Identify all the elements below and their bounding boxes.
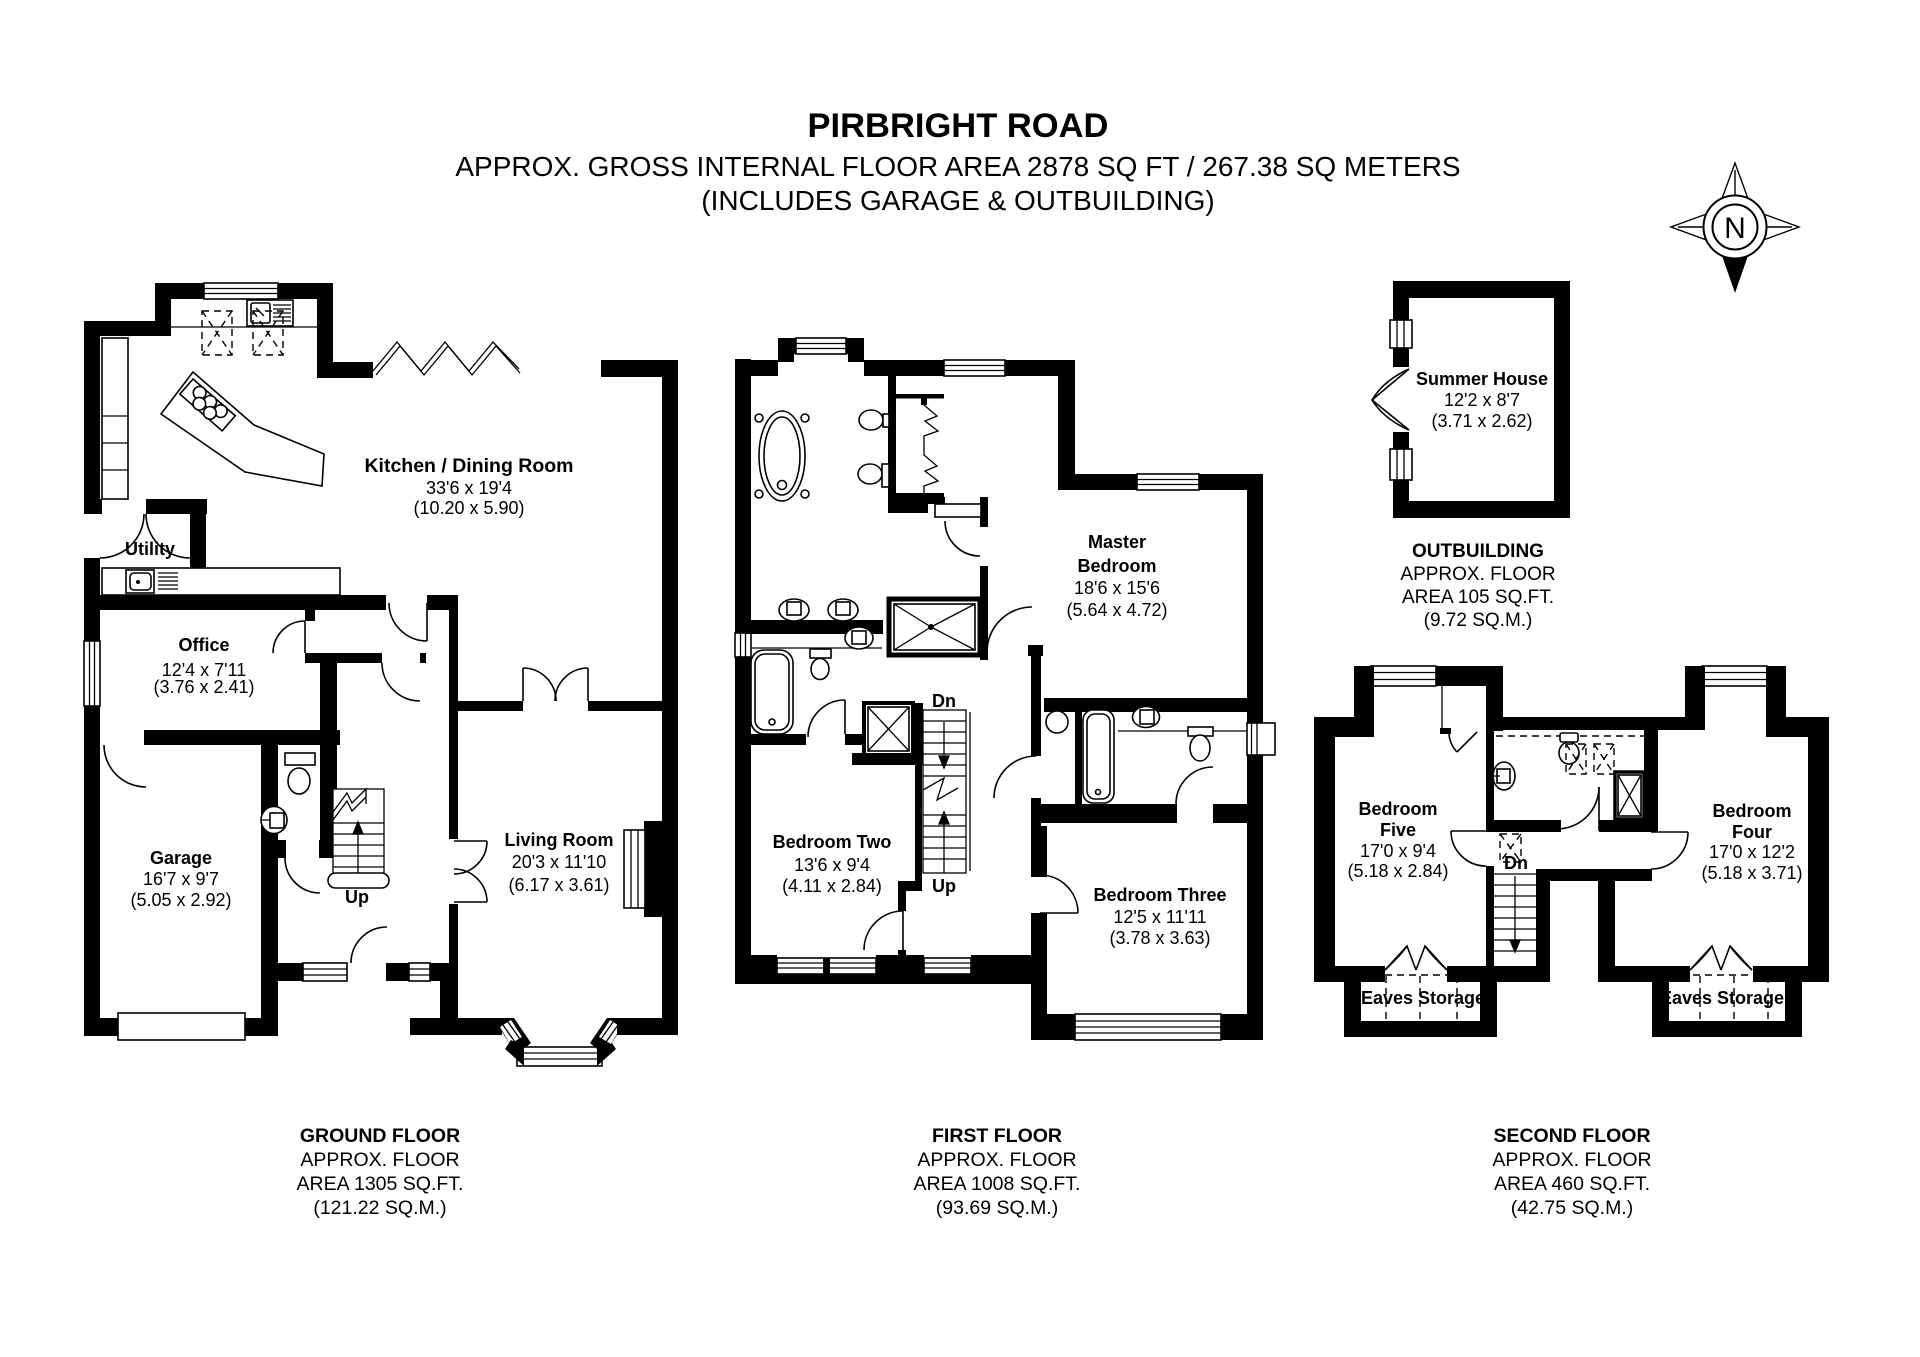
svg-text:16'7 x 9'7: 16'7 x 9'7 xyxy=(143,869,219,889)
svg-text:Bedroom: Bedroom xyxy=(1712,801,1791,821)
svg-text:12'5 x 11'11: 12'5 x 11'11 xyxy=(1113,907,1206,927)
svg-text:AREA 1305 SQ.FT.: AREA 1305 SQ.FT. xyxy=(297,1173,464,1195)
svg-text:(5.64 x 4.72): (5.64 x 4.72) xyxy=(1066,600,1167,620)
svg-text:Utility: Utility xyxy=(125,539,175,559)
svg-text:Eaves Storage: Eaves Storage xyxy=(1660,988,1784,1008)
svg-text:33'6 x 19'4: 33'6 x 19'4 xyxy=(426,478,512,498)
svg-text:Office: Office xyxy=(178,635,229,655)
svg-text:12'2 x 8'7: 12'2 x 8'7 xyxy=(1444,390,1520,410)
svg-text:(3.71 x 2.62): (3.71 x 2.62) xyxy=(1431,411,1532,431)
svg-text:Master: Master xyxy=(1088,532,1146,552)
svg-text:Kitchen / Dining Room: Kitchen / Dining Room xyxy=(364,455,573,477)
svg-text:(9.72 SQ.M.): (9.72 SQ.M.) xyxy=(1424,610,1533,631)
svg-text:(5.05 x 2.92): (5.05 x 2.92) xyxy=(130,890,231,910)
svg-text:(5.18 x 2.84): (5.18 x 2.84) xyxy=(1347,861,1448,881)
svg-text:(INCLUDES GARAGE & OUTBUILDING: (INCLUDES GARAGE & OUTBUILDING) xyxy=(701,185,1214,216)
svg-text:APPROX. FLOOR: APPROX. FLOOR xyxy=(1400,564,1555,585)
svg-text:AREA 1008 SQ.FT.: AREA 1008 SQ.FT. xyxy=(914,1173,1081,1195)
svg-text:APPROX. FLOOR: APPROX. FLOOR xyxy=(300,1149,459,1171)
svg-text:(42.75 SQ.M.): (42.75 SQ.M.) xyxy=(1511,1197,1633,1219)
svg-text:(6.17 x 3.61): (6.17 x 3.61) xyxy=(508,875,609,895)
svg-text:Garage: Garage xyxy=(150,848,212,868)
svg-text:N: N xyxy=(1724,212,1746,245)
svg-text:APPROX. FLOOR: APPROX. FLOOR xyxy=(1492,1149,1651,1171)
svg-text:(4.11 x 2.84): (4.11 x 2.84) xyxy=(782,876,882,896)
svg-text:18'6 x 15'6: 18'6 x 15'6 xyxy=(1074,578,1160,598)
svg-text:APPROX. GROSS INTERNAL FLOOR A: APPROX. GROSS INTERNAL FLOOR AREA 2878 S… xyxy=(455,151,1460,182)
svg-text:Bedroom: Bedroom xyxy=(1077,556,1156,576)
svg-text:13'6 x 9'4: 13'6 x 9'4 xyxy=(794,855,870,875)
svg-text:AREA 105 SQ.FT.: AREA 105 SQ.FT. xyxy=(1402,587,1554,608)
svg-text:Dn: Dn xyxy=(932,691,956,711)
svg-text:PIRBRIGHT ROAD: PIRBRIGHT ROAD xyxy=(808,107,1109,145)
svg-text:FIRST FLOOR: FIRST FLOOR xyxy=(932,1125,1062,1147)
svg-text:Dn: Dn xyxy=(1504,853,1528,873)
svg-text:17'0 x 12'2: 17'0 x 12'2 xyxy=(1709,842,1795,862)
svg-text:20'3 x 11'10: 20'3 x 11'10 xyxy=(512,852,607,872)
svg-text:APPROX. FLOOR: APPROX. FLOOR xyxy=(917,1149,1076,1171)
svg-text:OUTBUILDING: OUTBUILDING xyxy=(1412,541,1544,562)
svg-text:Eaves Storage: Eaves Storage xyxy=(1361,988,1485,1008)
svg-text:Living Room: Living Room xyxy=(505,830,614,850)
svg-text:Summer House: Summer House xyxy=(1416,369,1548,389)
svg-text:(3.76 x 2.41): (3.76 x 2.41) xyxy=(153,677,254,697)
svg-text:(93.69 SQ.M.): (93.69 SQ.M.) xyxy=(936,1197,1058,1219)
svg-text:Bedroom Three: Bedroom Three xyxy=(1093,885,1226,905)
svg-text:Up: Up xyxy=(932,876,956,896)
svg-text:(121.22 SQ.M.): (121.22 SQ.M.) xyxy=(313,1197,446,1219)
svg-text:Up: Up xyxy=(345,887,369,907)
svg-text:Bedroom Two: Bedroom Two xyxy=(773,832,892,852)
svg-text:(3.78 x 3.63): (3.78 x 3.63) xyxy=(1109,928,1210,948)
svg-text:Bedroom: Bedroom xyxy=(1358,799,1437,819)
svg-text:Five: Five xyxy=(1380,820,1416,840)
svg-text:AREA 460 SQ.FT.: AREA 460 SQ.FT. xyxy=(1494,1173,1650,1195)
svg-text:(10.20 x 5.90): (10.20 x 5.90) xyxy=(413,498,524,518)
svg-text:17'0 x 9'4: 17'0 x 9'4 xyxy=(1360,841,1436,861)
svg-text:Four: Four xyxy=(1732,822,1772,842)
svg-text:SECOND FLOOR: SECOND FLOOR xyxy=(1493,1125,1650,1147)
svg-text:GROUND FLOOR: GROUND FLOOR xyxy=(300,1125,460,1147)
svg-text:(5.18 x 3.71): (5.18 x 3.71) xyxy=(1701,863,1802,883)
